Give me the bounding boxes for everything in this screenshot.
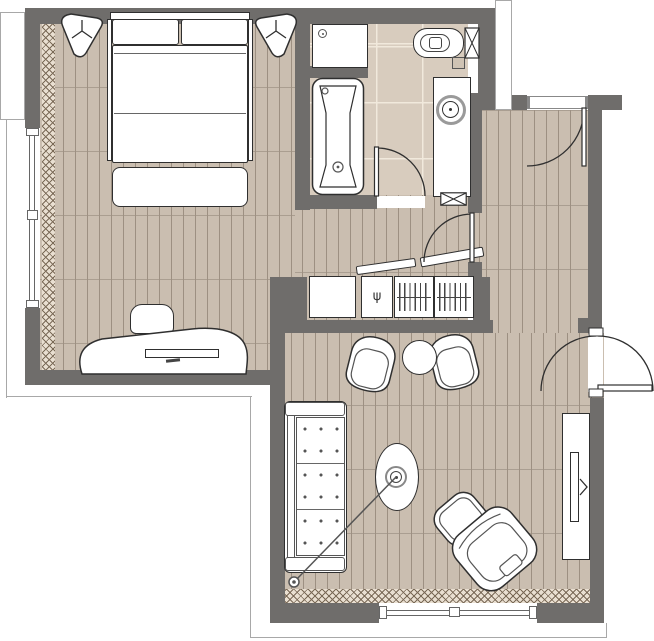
duct-symbol xyxy=(440,192,467,206)
bed-side-rail-right xyxy=(248,19,253,161)
wall xyxy=(270,277,307,322)
wardrobe-hanging-section xyxy=(394,276,434,318)
window-frame-block xyxy=(26,128,39,136)
bathtub xyxy=(311,77,365,196)
bed-foot-bench xyxy=(112,167,248,207)
bed-pillow xyxy=(112,19,179,45)
exterior-ledge xyxy=(0,12,25,120)
round-side-table xyxy=(402,340,437,375)
building-outline xyxy=(250,396,251,638)
shower-drain-dot xyxy=(322,33,324,35)
building-outline xyxy=(606,623,607,638)
sofa-cushion xyxy=(297,418,344,464)
toilet-cistern xyxy=(464,27,480,59)
monitor xyxy=(145,349,219,358)
window-mullion xyxy=(27,210,38,220)
wall xyxy=(25,305,40,370)
floor-plan: ψ xyxy=(0,0,654,641)
wardrobe-hanging-section xyxy=(434,276,474,318)
wall xyxy=(537,603,604,623)
wall xyxy=(270,320,285,603)
exterior-notch xyxy=(495,0,512,110)
bed-pillow xyxy=(181,19,248,45)
wall xyxy=(590,398,604,623)
inner-hall-door xyxy=(416,209,478,267)
wall xyxy=(25,24,40,130)
coat-hook-symbol: ψ xyxy=(362,289,392,304)
window-mullion xyxy=(449,607,460,617)
wardrobe-cabinet xyxy=(309,276,356,318)
hanging-rail xyxy=(437,297,471,298)
bathroom-door xyxy=(369,144,431,202)
window-frame-block xyxy=(529,606,537,619)
wardrobe-hook-section: ψ xyxy=(361,276,393,318)
wall xyxy=(473,277,490,322)
building-outline xyxy=(250,637,607,638)
bed-duvet-line xyxy=(114,113,246,114)
arc-floor-lamp xyxy=(286,466,406,592)
tv-bracket xyxy=(578,478,590,496)
toilet-center xyxy=(429,37,442,49)
bed-sheet-line xyxy=(114,53,246,54)
wall xyxy=(295,195,377,209)
building-outline xyxy=(6,120,7,398)
washbasin-drain-dot xyxy=(449,108,452,111)
building-outline xyxy=(6,396,252,397)
wall xyxy=(588,95,622,110)
double-swing-door xyxy=(533,326,654,400)
wall xyxy=(270,603,380,623)
corner-pouf-right xyxy=(249,9,303,61)
desk xyxy=(72,302,256,376)
curtain-west xyxy=(42,24,55,370)
bed-mattress xyxy=(112,45,248,163)
entry-door xyxy=(523,105,591,171)
corner-pouf-left xyxy=(55,9,109,61)
window-frame-block xyxy=(379,606,387,619)
window-frame-block xyxy=(26,300,39,308)
hanging-rail xyxy=(397,297,431,298)
sofa-armrest xyxy=(285,402,345,416)
